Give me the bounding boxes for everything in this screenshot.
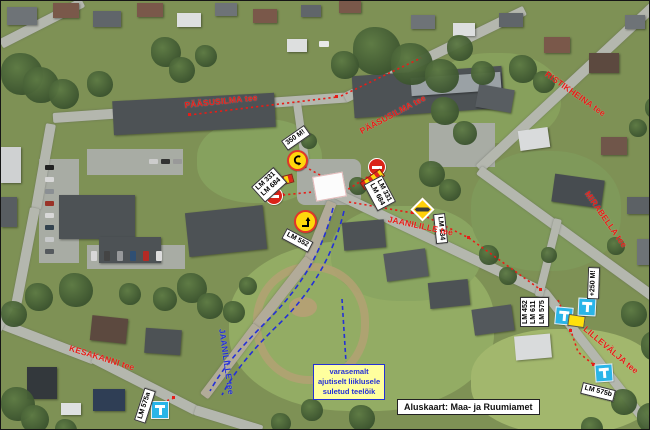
closure-note-line: varasemalt xyxy=(318,367,380,377)
sign-label-cluster: LM 452 LM 611 LM 575 xyxy=(520,297,549,327)
dead-end-sign xyxy=(578,298,597,317)
road-kesakanni xyxy=(194,405,264,430)
dead-end-sign xyxy=(594,363,613,382)
traffic-management-plan-map: 350 M! LM 331 LM 684 LM 331 LM 684 LM 55… xyxy=(0,0,650,430)
dead-end-sign xyxy=(151,401,169,419)
closure-note: varasemalt ajutiselt liiklusele suletud … xyxy=(313,364,385,400)
distance-plate xyxy=(567,314,586,328)
detour-scheme-sign xyxy=(294,210,317,233)
closure-note-line: ajutiselt liiklusele xyxy=(318,377,380,387)
detour-arrow-icon xyxy=(292,155,303,166)
priority-road-sign xyxy=(412,199,432,219)
basemap-credit: Aluskaart: Maa- ja Ruumiamet xyxy=(397,399,540,415)
work-zone-box xyxy=(312,172,347,202)
detour-direction-sign xyxy=(287,150,308,171)
sign-label-distance-250: +250 M! xyxy=(587,267,600,299)
detour-arrow-icon xyxy=(300,216,312,228)
closure-note-line: suletud teelõik xyxy=(318,387,380,397)
